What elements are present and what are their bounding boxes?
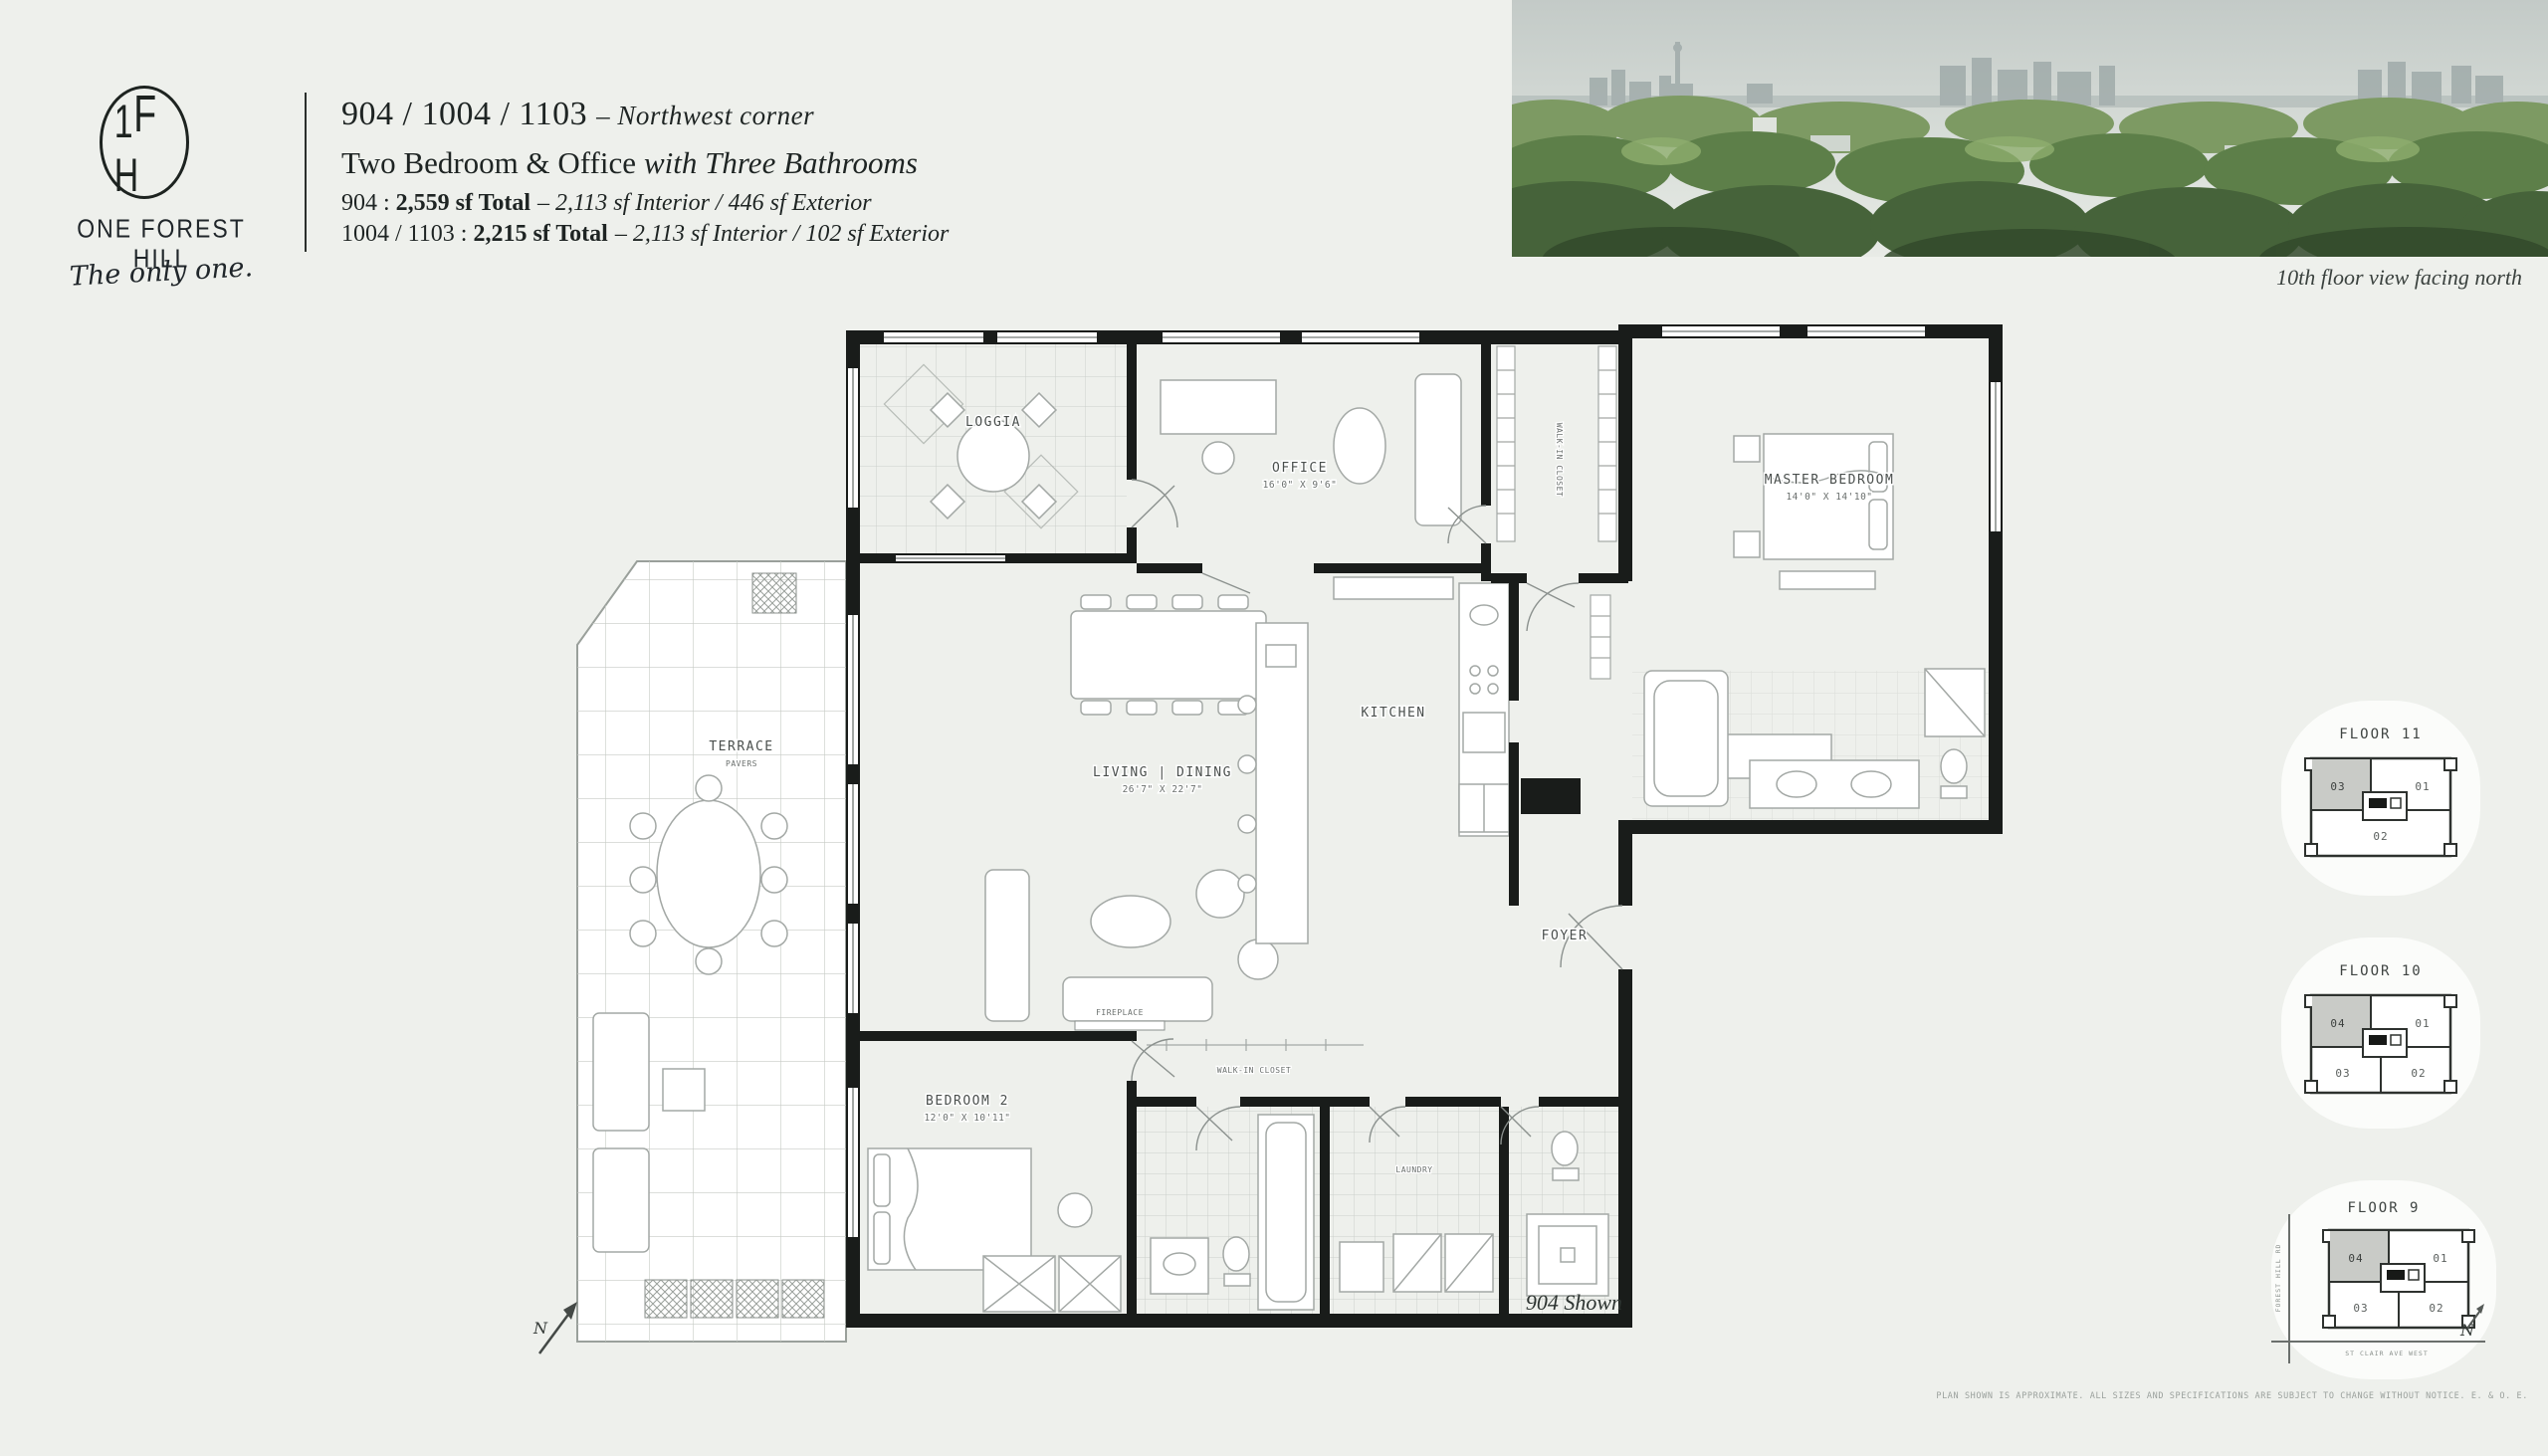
- unit-numbers-line: 904 / 1004 / 1103– Northwest corner: [341, 96, 1237, 133]
- hall-closet: [1591, 595, 1610, 679]
- area-1004-total: 2,215 sf Total: [473, 221, 607, 247]
- unit-04: 04: [2330, 1017, 2345, 1030]
- north-letter: N: [532, 1319, 548, 1338]
- loggia-area: LOGGIA: [860, 344, 1127, 553]
- room-label-terrace: TERRACE: [709, 739, 773, 754]
- label-fireplace: FIREPLACE: [1096, 1008, 1144, 1017]
- unit-01: 01: [2415, 780, 2430, 793]
- room-label-kitchen: KITCHEN: [1361, 706, 1425, 721]
- laundry-fixtures: [1340, 1234, 1493, 1292]
- area-1004-prefix: 1004 / 1103 :: [341, 221, 467, 247]
- corner-label: – Northwest corner: [596, 101, 814, 130]
- unit-03: 03: [2353, 1302, 2368, 1315]
- plan-type-detail: with Three Bathrooms: [644, 145, 918, 180]
- loggia-table: [957, 420, 1029, 492]
- view-photo: [1512, 0, 2548, 257]
- unit-01: 01: [2433, 1252, 2447, 1265]
- unit-01: 01: [2415, 1017, 2430, 1030]
- unit-02: 02: [2373, 830, 2388, 843]
- room-dims-living: 26'7" X 22'7": [1123, 784, 1203, 795]
- room-label-laundry: LAUNDRY: [1395, 1165, 1432, 1174]
- terrace-area: TERRACE PAVERS: [577, 561, 846, 1342]
- room-label-foyer: FOYER: [1542, 929, 1589, 943]
- area-1004-breakdown: – 2,113 sf Interior / 102 sf Exterior: [615, 221, 950, 247]
- keyplan-building: 04 01 03 02: [2323, 1230, 2474, 1328]
- area-904-breakdown: – 2,113 sf Interior / 446 sf Exterior: [537, 190, 872, 216]
- room-dims-bedroom2: 12'0" X 10'11": [924, 1113, 1010, 1124]
- room-label-office: OFFICE: [1272, 461, 1328, 476]
- floor-plan: TERRACE PAVERS LOGGIA: [518, 316, 2011, 1356]
- keyplan-floor-9: FLOOR 9 FOREST HILL RD ST CLAIR AVE WEST…: [2271, 1180, 2496, 1379]
- kitchen-counter: [1459, 583, 1509, 836]
- photo-caption: 10th floor view facing north: [2024, 265, 2522, 291]
- unit-02: 02: [2411, 1067, 2426, 1080]
- brand-logo: 1FH: [100, 86, 189, 199]
- room-sublabel-terrace: PAVERS: [726, 759, 757, 768]
- header-divider: [305, 93, 307, 252]
- north-arrow-icon: N: [532, 1302, 577, 1353]
- street-label-left: FOREST HILL RD: [2274, 1244, 2282, 1313]
- disclaimer-text: PLAN SHOWN IS APPROXIMATE. ALL SIZES AND…: [1632, 1391, 2528, 1401]
- plan-type: Two Bedroom & Office: [341, 145, 636, 180]
- office-furniture: [1161, 374, 1461, 525]
- unit-03: 03: [2335, 1067, 2350, 1080]
- room-label-living: LIVING | DINING: [1093, 765, 1232, 780]
- room-label-bedroom2: BEDROOM 2: [926, 1094, 1009, 1109]
- area-904-prefix: 904 :: [341, 190, 390, 216]
- keyplan-floor-11: FLOOR 11 03 01 02: [2281, 701, 2480, 896]
- unit-02: 02: [2429, 1302, 2443, 1315]
- room-label-master: MASTER BEDROOM: [1765, 473, 1895, 488]
- view-photo-art: [1512, 0, 2548, 257]
- terrace-sofa: [593, 1013, 649, 1131]
- keyplan-floor-10: FLOOR 10 04 01 03 02: [2281, 937, 2480, 1129]
- planter: [752, 573, 796, 613]
- room-label-loggia: LOGGIA: [965, 415, 1021, 430]
- street-label-bottom: ST CLAIR AVE WEST: [2345, 1350, 2429, 1357]
- plan-type-line: Two Bedroom & Officewith Three Bathrooms: [341, 145, 1237, 181]
- area-904-total: 2,559 sf Total: [396, 190, 531, 216]
- area-904-line: 904 : 2,559 sf Total– 2,113 sf Interior …: [341, 190, 1237, 217]
- keyplan-title: FLOOR 10: [2281, 963, 2480, 979]
- area-1004-line: 1004 / 1103 : 2,215 sf Total– 2,113 sf I…: [341, 221, 1237, 248]
- plan-caption: 904 Shown: [1413, 1290, 1622, 1316]
- unit-04: 04: [2348, 1252, 2363, 1265]
- room-dims-master: 14'0" X 14'10": [1786, 492, 1872, 503]
- walkin2-closet: [1147, 1039, 1364, 1051]
- keyplan-north-letter: N: [2459, 1321, 2475, 1340]
- keyplan-building: [2305, 995, 2456, 1093]
- room-dims-office: 16'0" X 9'6": [1263, 480, 1338, 491]
- unit-03: 03: [2330, 780, 2345, 793]
- brochure-page: 1FH ONE FOREST HILL The only one. 904 / …: [0, 0, 2548, 1456]
- living-set: [985, 870, 1278, 1021]
- room-label-walkin2: WALK-IN CLOSET: [1217, 1066, 1291, 1075]
- keyplan-title: FLOOR 11: [2281, 727, 2480, 742]
- unit-numbers: 904 / 1004 / 1103: [341, 96, 587, 132]
- bedroom2-furniture: [868, 1148, 1121, 1312]
- room-label-walkin: WALK-IN CLOSET: [1555, 423, 1564, 497]
- title-block: 904 / 1004 / 1103– Northwest corner Two …: [341, 96, 1237, 248]
- terrace-table: [657, 800, 760, 947]
- terrace-side-table: [663, 1069, 705, 1111]
- logo-monogram: 1FH: [114, 86, 174, 200]
- terrace-sofa: [593, 1148, 649, 1252]
